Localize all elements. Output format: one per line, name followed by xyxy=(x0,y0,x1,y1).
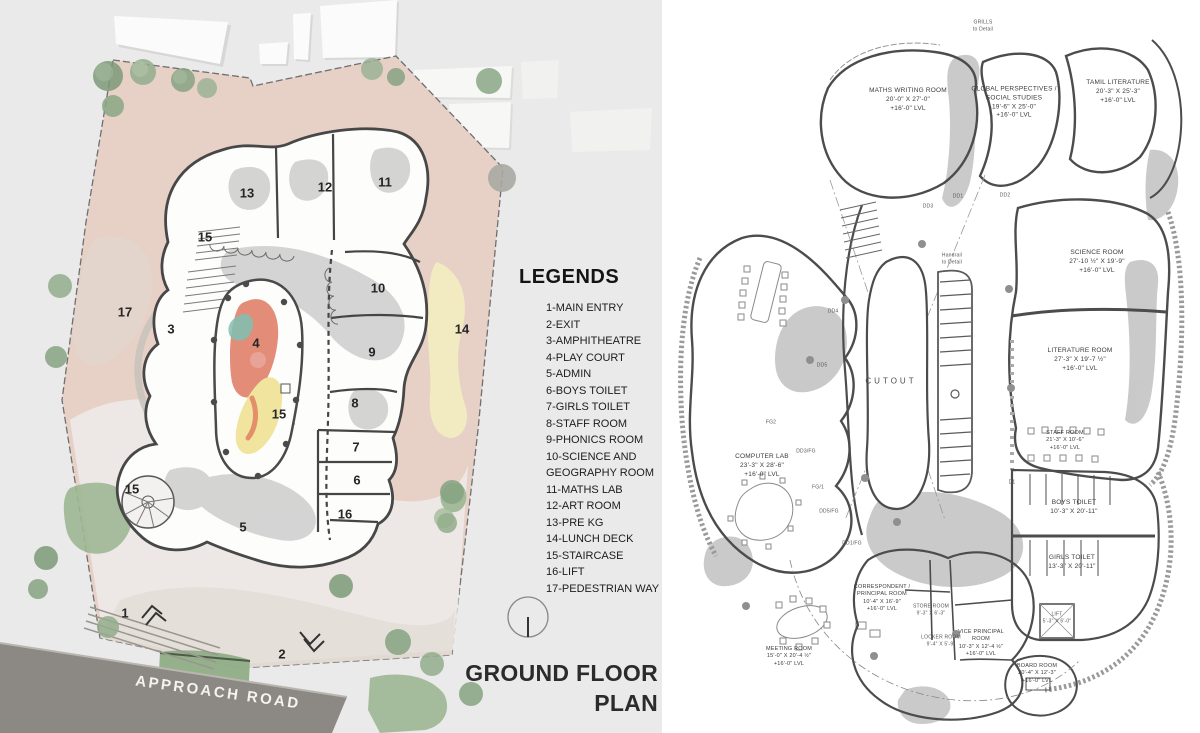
legend-item: 5-ADMIN xyxy=(546,366,665,383)
stairs-round-admin xyxy=(122,476,174,528)
grand-staircase xyxy=(938,271,972,493)
page-title: GROUND FLOOR PLAN xyxy=(462,659,658,719)
legend-item: 13-PRE KG xyxy=(546,515,665,532)
legend: LEGENDS 1-MAIN ENTRY2-EXIT3-AMPHITHEATRE… xyxy=(519,266,659,597)
legend-item: 12-ART ROOM xyxy=(546,498,665,515)
legend-item: 10-SCIENCE AND GEOGRAPHY ROOM xyxy=(546,449,665,482)
left-curved-wall xyxy=(681,258,716,556)
legend-items: 1-MAIN ENTRY2-EXIT3-AMPHITHEATRE4-PLAY C… xyxy=(546,300,665,597)
legend-item: 9-PHONICS ROOM xyxy=(546,432,665,449)
legend-item: 4-PLAY COURT xyxy=(546,350,665,367)
legend-item: 15-STAIRCASE xyxy=(546,548,665,565)
legend-item: 6-BOYS TOILET xyxy=(546,383,665,400)
technical-plan-drawing xyxy=(660,0,1200,733)
legend-item: 1-MAIN ENTRY xyxy=(546,300,665,317)
legend-item: 8-STAFF ROOM xyxy=(546,416,665,433)
bottom-right-curved-wall xyxy=(1045,472,1171,690)
floor-plan-sheet: LEGENDS 1-MAIN ENTRY2-EXIT3-AMPHITHEATRE… xyxy=(0,0,1200,733)
legend-item: 3-AMPHITHEATRE xyxy=(546,333,665,350)
legend-item: 14-LUNCH DECK xyxy=(546,531,665,548)
north-arrow xyxy=(508,597,548,637)
legend-item: 17-PEDESTRIAN WAY xyxy=(546,581,665,598)
legend-item: 11-MATHS LAB xyxy=(546,482,665,499)
legend-item: 16-LIFT xyxy=(546,564,665,581)
legend-item: 2-EXIT xyxy=(546,317,665,334)
cutout-shape xyxy=(867,257,930,509)
legend-item: 7-GIRLS TOILET xyxy=(546,399,665,416)
legend-title: LEGENDS xyxy=(519,266,659,289)
top-classrooms xyxy=(821,40,1181,198)
